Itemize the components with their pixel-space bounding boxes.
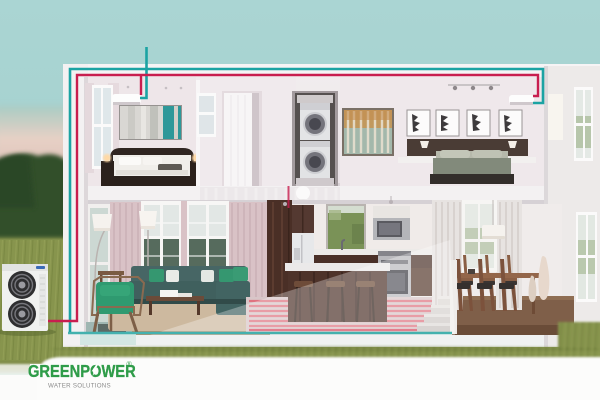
svg-text:®: ® xyxy=(127,361,133,369)
svg-text:GREENPOWER: GREENPOWER xyxy=(28,362,136,382)
svg-text:WATER SOLUTIONS: WATER SOLUTIONS xyxy=(48,383,111,390)
